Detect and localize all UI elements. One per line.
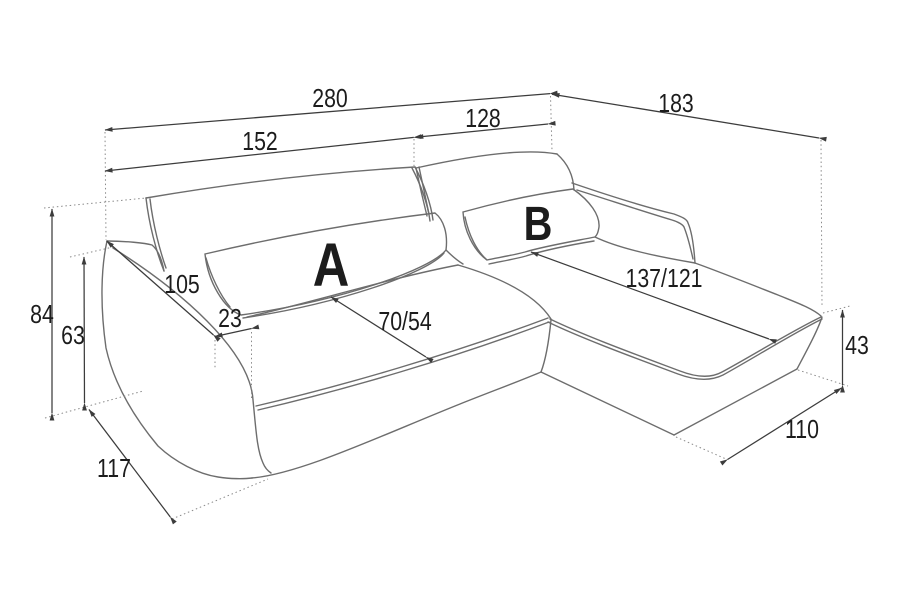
svg-text:43: 43 [845,331,869,361]
svg-text:183: 183 [658,89,694,119]
svg-text:280: 280 [312,84,348,114]
svg-text:137/121: 137/121 [625,264,702,294]
svg-text:23: 23 [218,304,242,334]
svg-text:84: 84 [30,300,54,330]
svg-text:152: 152 [242,127,278,157]
svg-text:117: 117 [97,454,131,484]
svg-text:110: 110 [785,415,819,445]
svg-text:63: 63 [61,321,85,351]
svg-text:128: 128 [465,104,501,134]
svg-text:105: 105 [164,270,200,300]
svg-text:B: B [524,198,553,251]
svg-text:70/54: 70/54 [378,307,431,337]
svg-text:A: A [313,231,350,300]
